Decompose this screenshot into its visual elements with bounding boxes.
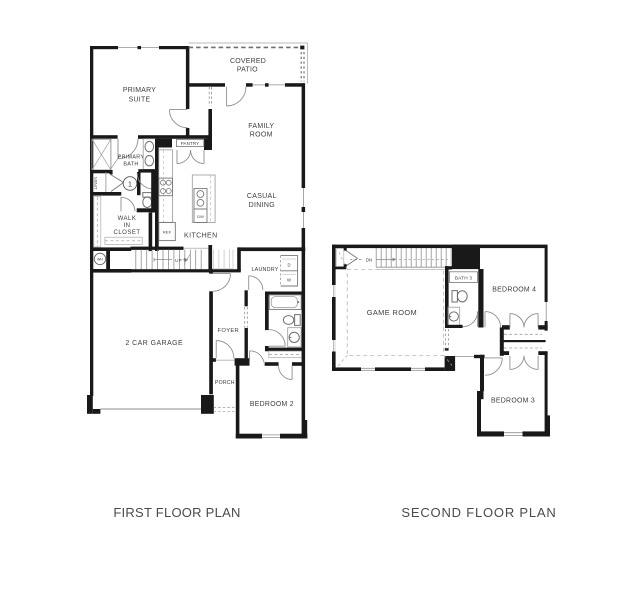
- svg-text:REF: REF: [163, 230, 172, 235]
- svg-text:PATIO: PATIO: [237, 67, 258, 74]
- svg-text:PORCH: PORCH: [215, 380, 235, 386]
- svg-text:DW: DW: [197, 214, 204, 219]
- svg-text:PRIMARY: PRIMARY: [123, 87, 156, 94]
- svg-text:BEDROOM 3: BEDROOM 3: [491, 397, 535, 404]
- svg-text:W: W: [287, 278, 291, 283]
- svg-text:BATH 3: BATH 3: [455, 276, 472, 281]
- svg-text:COVERED: COVERED: [230, 58, 266, 65]
- svg-text:2 CAR GARAGE: 2 CAR GARAGE: [125, 340, 183, 347]
- svg-text:IN: IN: [124, 223, 131, 229]
- svg-text:FAMILY: FAMILY: [248, 123, 274, 130]
- svg-text:LAUNDRY: LAUNDRY: [251, 267, 278, 273]
- svg-text:SECOND FLOOR PLAN: SECOND FLOOR PLAN: [401, 505, 556, 520]
- svg-text:CLOSET: CLOSET: [113, 230, 140, 236]
- svg-text:GAME ROOM: GAME ROOM: [367, 308, 417, 317]
- svg-text:BEDROOM 4: BEDROOM 4: [492, 286, 536, 293]
- svg-text:PANTRY: PANTRY: [181, 141, 200, 146]
- svg-text:KITCHEN: KITCHEN: [184, 233, 218, 240]
- svg-text:CASUAL: CASUAL: [247, 193, 277, 200]
- svg-text:ROOM: ROOM: [250, 132, 273, 139]
- svg-text:FOYER: FOYER: [218, 328, 239, 334]
- svg-text:DN: DN: [366, 257, 373, 262]
- svg-text:SUITE: SUITE: [129, 97, 151, 104]
- svg-text:1: 1: [128, 179, 132, 188]
- svg-text:PRIMARY: PRIMARY: [118, 155, 145, 161]
- svg-text:DINING: DINING: [249, 202, 275, 209]
- svg-text:LINEN: LINEN: [93, 177, 98, 190]
- svg-text:BATH: BATH: [123, 162, 138, 168]
- svg-text:UP: UP: [175, 258, 182, 263]
- svg-text:WALK: WALK: [118, 216, 137, 222]
- svg-text:FIRST FLOOR PLAN: FIRST FLOOR PLAN: [113, 505, 240, 520]
- svg-text:D: D: [287, 262, 290, 267]
- svg-text:BEDROOM 2: BEDROOM 2: [250, 401, 294, 408]
- svg-text:WH: WH: [97, 258, 103, 262]
